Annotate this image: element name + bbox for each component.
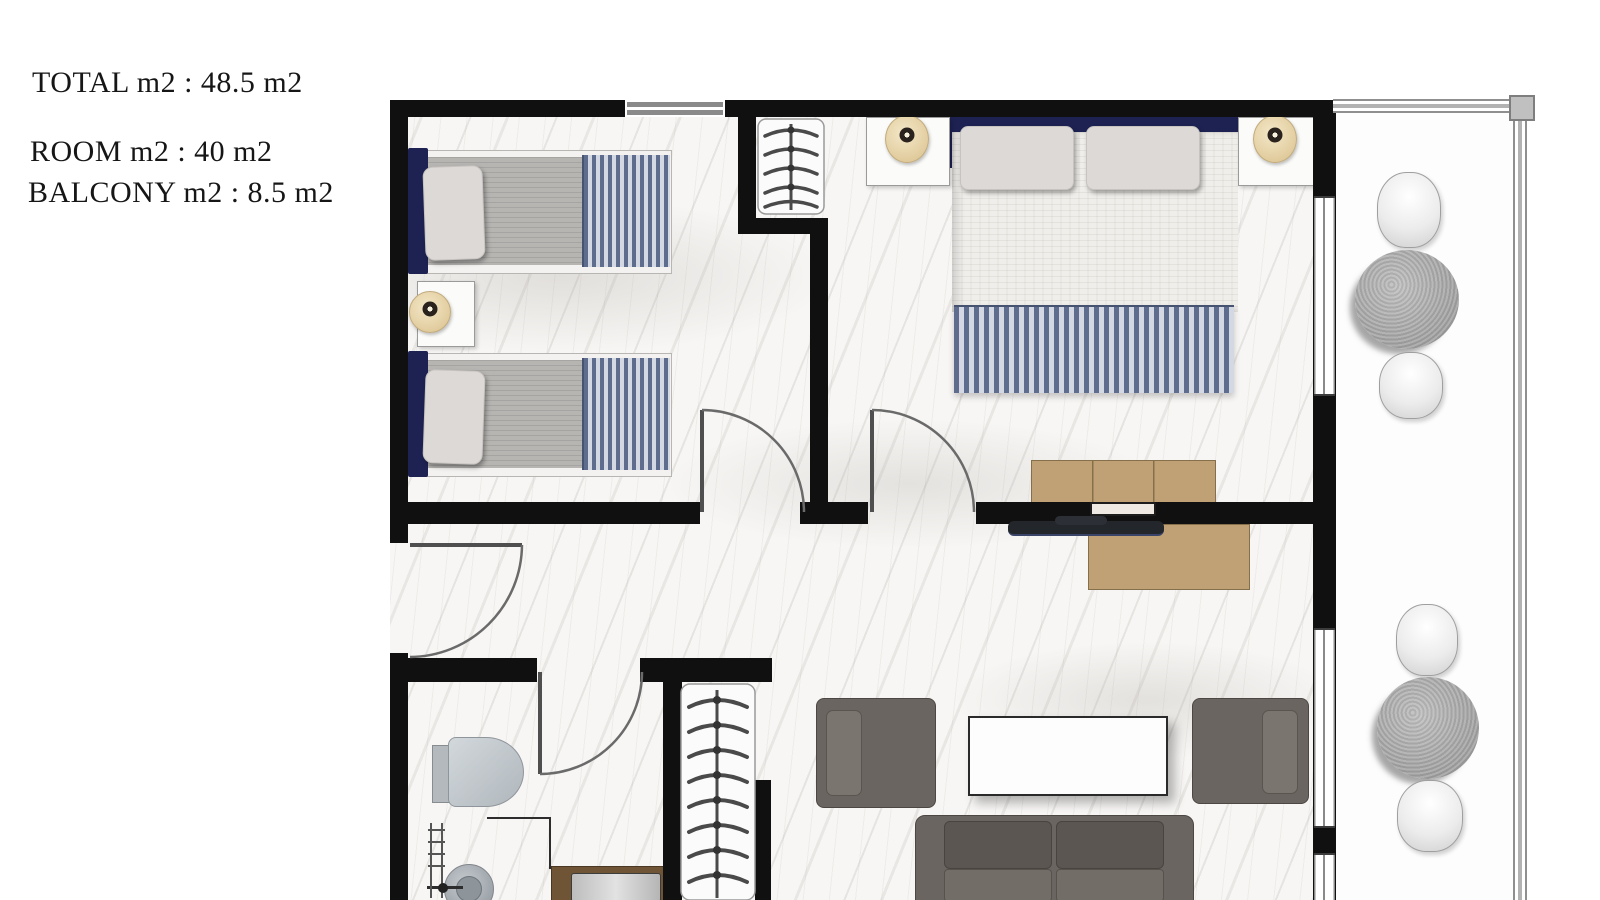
dresser-handle [1090, 502, 1156, 516]
wall-closet-right [755, 780, 771, 900]
twin-bed-2-blanket [582, 358, 670, 470]
railing-top [1333, 99, 1527, 113]
double-lamp-left-icon [885, 115, 929, 163]
wall-middle-a [390, 502, 700, 524]
twin-bed-1-blanket [582, 155, 670, 267]
wall-bathroom-top-b [640, 658, 772, 682]
soundbar [1055, 516, 1107, 525]
sofa-seat-right [1056, 869, 1164, 900]
total-area-label: TOTAL m2 : 48.5 m2 [32, 66, 303, 100]
window-living-lower [1314, 853, 1335, 900]
window-top-bar-1 [627, 102, 723, 107]
wall-closet-left [663, 682, 682, 900]
toilet-icon [448, 737, 524, 807]
double-lamp-right-icon [1253, 115, 1297, 163]
railing-right [1513, 99, 1527, 900]
wall-top [390, 100, 1336, 117]
bathroom-partition-horizontal [487, 817, 551, 819]
twin-bed-1-pillow [422, 165, 485, 261]
sofa-seat-left [944, 869, 1052, 900]
faucet-icon [427, 886, 463, 889]
double-bed-pillow-left [960, 126, 1074, 190]
twin-bed-2-pillow [422, 369, 485, 465]
wall-bedroom2-left [810, 232, 828, 524]
double-bed-pillow-right [1086, 126, 1200, 190]
railing-corner-post [1509, 95, 1535, 121]
window-living [1314, 628, 1335, 828]
window-top [625, 99, 725, 117]
sofa-back-cushion-right [1056, 821, 1164, 869]
balcony-table-bottom [1377, 677, 1479, 779]
bathroom-partition-vertical [549, 817, 551, 869]
room-area-label: ROOM m2 : 40 m2 [30, 135, 273, 169]
window-top-bar-2 [627, 110, 723, 115]
balcony-chair-bottom-2 [1397, 780, 1463, 852]
balcony-chair-top-2 [1379, 352, 1443, 419]
balcony-table-top [1355, 250, 1459, 349]
balcony-chair-top-1 [1377, 172, 1441, 248]
wall-bedroom-divider [738, 117, 756, 233]
window-bedroom2 [1314, 196, 1335, 396]
double-bed-blanket [954, 305, 1234, 393]
twin-lamp-icon [409, 291, 451, 333]
sofa-back-cushion-left [944, 821, 1052, 869]
vanity-panel [571, 873, 661, 900]
armchair-right-backrest [1262, 710, 1298, 794]
armchair-left-backrest [826, 710, 862, 796]
balcony-area-label: BALCONY m2 : 8.5 m2 [28, 176, 334, 210]
floor-plan-canvas: TOTAL m2 : 48.5 m2 ROOM m2 : 40 m2 BALCO… [0, 0, 1600, 900]
wall-bathroom-top-a [390, 658, 537, 682]
coffee-table [968, 716, 1168, 796]
wall-left-lower [390, 653, 408, 900]
wall-left-upper [390, 100, 408, 543]
balcony-chair-bottom-1 [1396, 604, 1458, 676]
